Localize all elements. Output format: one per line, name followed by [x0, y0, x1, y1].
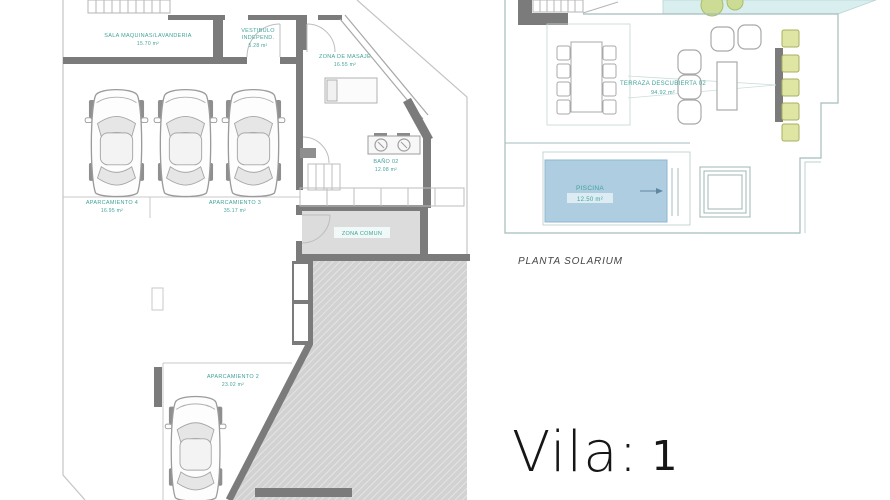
lounge-chair: [678, 50, 701, 74]
dining-chair: [557, 64, 570, 78]
room-label-bano-02: BAÑO 02: [373, 158, 398, 165]
wall-niche: [294, 264, 308, 300]
lounge-chair: [678, 75, 701, 99]
car-top-view: [154, 90, 217, 197]
dining-table: [571, 42, 602, 112]
small-staircase: [308, 164, 340, 190]
room-label-vestibulo-2: INDEPEND.: [242, 35, 275, 41]
dining-chair: [603, 46, 616, 60]
room-area-bano-02: 12.08 m²: [375, 167, 397, 173]
jacuzzi-platform: [700, 167, 750, 217]
sun-lounger: [782, 79, 799, 96]
pool-ladder: [672, 168, 678, 216]
boundary-step: [805, 162, 821, 233]
terrace-lawn-strip: [663, 0, 876, 14]
sun-loungers: [782, 30, 799, 141]
staircase: [533, 0, 618, 13]
solarium-plan: TERRAZA DESCUBIERTA 02 94.92 m² PISCINA …: [505, 0, 876, 233]
room-area-piscina: 12.50 m²: [577, 197, 603, 203]
dining-chair: [603, 64, 616, 78]
room-label-sala-maquinas: SALA MAQUINAS/LAVANDERIA: [104, 33, 191, 39]
car-top-view: [85, 90, 148, 197]
lounge-chair: [711, 27, 734, 51]
staircase: [88, 0, 170, 13]
wall-niche: [294, 304, 308, 341]
room-label-zona-comun: ZONA COMUN: [342, 231, 382, 237]
room-label-vestibulo: VESTIBULO: [241, 28, 275, 34]
sun-lounger: [782, 30, 799, 47]
sun-lounger: [782, 103, 799, 120]
dining-chair: [557, 100, 570, 114]
dining-chair: [557, 82, 570, 96]
room-label-aparcamiento-4: APARCAMIENTO 4: [86, 200, 138, 206]
room-label-aparcamiento-2: APARCAMIENTO 2: [207, 374, 259, 380]
fixture: [300, 148, 316, 158]
room-label-piscina: PISCINA: [576, 185, 604, 192]
dining-set: [557, 42, 616, 114]
room-label-aparcamiento-3: APARCAMIENTO 3: [209, 200, 261, 206]
vanity-sinks: [368, 133, 420, 154]
room-label-zona-masaje: ZONA DE MASAJE: [319, 54, 371, 60]
massage-table: [325, 78, 377, 103]
wall-segment: [407, 100, 429, 140]
lounge-chair: [738, 25, 761, 49]
room-area-zona-masaje: 16.55 m²: [334, 62, 356, 68]
lounge-furniture: [678, 25, 761, 124]
room-area-sala-maquinas: 15.70 m²: [137, 41, 159, 47]
brand-name: Vila:: [512, 430, 638, 476]
coffee-table: [717, 62, 737, 110]
floor-plan-sheet: SALA MAQUINAS/LAVANDERIA 15.70 m² VESTIB…: [0, 0, 890, 500]
car-top-view: [165, 397, 226, 500]
plan-caption-solarium: PLANTA SOLARIUM: [518, 256, 623, 267]
dining-chair: [603, 82, 616, 96]
plot-boundary: [63, 0, 85, 500]
dining-chair: [557, 46, 570, 60]
stair-treads-row: [300, 188, 464, 206]
villa-number: 1: [651, 440, 677, 476]
basement-plan: SALA MAQUINAS/LAVANDERIA 15.70 m² VESTIB…: [63, 0, 470, 500]
room-area-terraza: 94.92 m²: [651, 90, 675, 96]
brand-logo: Vila: 1: [512, 430, 677, 476]
wall-segment: [255, 488, 352, 497]
room-area-vestibulo: 5.28 m²: [248, 43, 267, 49]
lounge-chair: [678, 100, 701, 124]
dining-chair: [603, 100, 616, 114]
plan-drawing: SALA MAQUINAS/LAVANDERIA 15.70 m² VESTIB…: [0, 0, 890, 500]
sun-lounger: [782, 55, 799, 72]
unexcavated-hatch-area: [232, 257, 467, 500]
sun-lounger: [782, 124, 799, 141]
car-top-view: [222, 90, 285, 197]
room-area-aparcamiento-4: 16.95 m²: [101, 208, 123, 214]
room-area-aparcamiento-2: 23.02 m²: [222, 382, 244, 388]
room-label-terraza: TERRAZA DESCUBIERTA 02: [620, 81, 706, 87]
room-area-aparcamiento-3: 35.17 m²: [224, 208, 246, 214]
